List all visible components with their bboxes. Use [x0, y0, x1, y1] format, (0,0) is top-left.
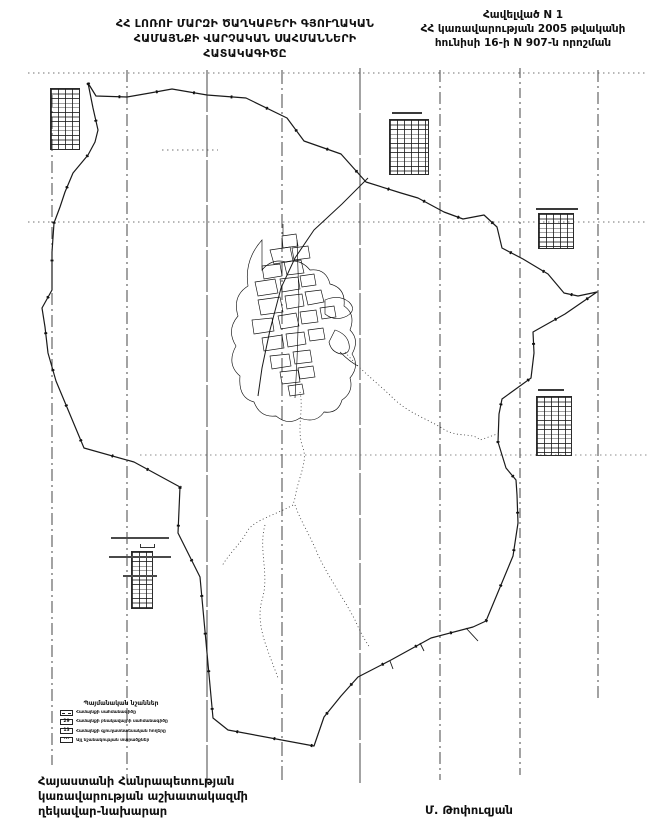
legend-title: Պայմանական նշաններ — [60, 700, 182, 707]
legend-row: 29 Համայնքի բնակավայրի սահմանագիծը — [60, 719, 182, 726]
scale-note — [104, 525, 176, 582]
boundary-path — [42, 83, 597, 746]
coordinate-table-4 — [536, 396, 572, 456]
coordinate-table-2-caption — [392, 112, 422, 114]
coordinate-table-2 — [389, 119, 429, 175]
graticule-vertical-lines — [52, 68, 598, 783]
settlement-boundary-symbol-icon: 29 — [60, 719, 73, 726]
coordinate-table-3-caption — [536, 208, 578, 210]
streams — [222, 352, 500, 678]
coordinate-table-4-caption — [538, 389, 564, 391]
legend-item-label: Համայնքի գյուղատնտեսական հողերը — [76, 729, 166, 734]
signatory-name: Մ. Թոփուզյան — [425, 803, 605, 817]
legend-item-label: Համայնքի սահմանագիծը — [76, 710, 136, 715]
signatory-title-line-1: Հայաստանի Հանրապետության — [38, 774, 298, 789]
agricultural-land-symbol-icon: 13 — [60, 728, 73, 735]
boundary-ticks — [390, 628, 478, 669]
settlement-cluster — [231, 224, 358, 422]
scanned-map-page: { "header": { "title": [ "ՀՀ ԼՈՌՈՒ ՄԱՐԶԻ… — [0, 0, 658, 830]
signatory-title-line-3: ղեկավար-նախարար — [38, 804, 298, 819]
legend-row: Համայնքի սահմանագիծը — [60, 710, 182, 717]
legend-box: Պայմանական նշաններ Համայնքի սահմանագիծը … — [60, 700, 182, 743]
community-boundary — [42, 83, 597, 746]
map-title-line-2: ՀԱՄԱՅՆՔԻ ՎԱՐՉԱԿԱՆ ՍԱՀՄԱՆՆԵՐԻ — [90, 31, 400, 46]
legend-row: ··· Այլ նշանակության տարածքներ — [60, 737, 182, 744]
map-title: ՀՀ ԼՈՌՈՒ ՄԱՐԶԻ ԾԱՂԿԱԲԵՐԻ ԳՅՈՒՂԱԿԱՆ ՀԱՄԱՅ… — [90, 16, 400, 61]
annex-line-2: ՀՀ կառավարության 2005 թվականի — [398, 22, 648, 36]
annex-reference: Հավելված N 1 ՀՀ կառավարության 2005 թվակա… — [398, 8, 648, 50]
annex-line-3: հունիսի 16-ի N 907-ն որոշման — [398, 36, 648, 50]
map-title-line-3: ՀԱՏԱԿԱԳԻԾԸ — [90, 46, 400, 61]
legend-item-label: Համայնքի բնակավայրի սահմանագիծը — [76, 719, 168, 724]
map-title-line-1: ՀՀ ԼՈՌՈՒ ՄԱՐԶԻ ԾԱՂԿԱԲԵՐԻ ԳՅՈՒՂԱԿԱՆ — [90, 16, 400, 31]
legend-row: 13 Համայնքի գյուղատնտեսական հողերը — [60, 728, 182, 735]
scale-note-text-line — [123, 575, 157, 577]
coordinate-table-1 — [50, 88, 80, 150]
scale-note-text-line — [109, 556, 171, 558]
legend-item-label: Այլ նշանակության տարածքներ — [76, 738, 149, 743]
signatory-title: Հայաստանի Հանրապետության կառավարության ա… — [38, 774, 298, 819]
annex-line-1: Հավելված N 1 — [398, 8, 648, 22]
scale-bar — [140, 544, 155, 548]
main-road — [258, 178, 368, 396]
boundary-vertex-markers — [42, 83, 597, 746]
signatory-title-line-2: կառավարության աշխատակազմի — [38, 789, 298, 804]
boundary-line-symbol-icon — [60, 710, 73, 717]
coordinate-table-3 — [538, 213, 574, 249]
scale-note-text-line — [111, 537, 169, 539]
other-land-symbol-icon: ··· — [60, 737, 73, 744]
